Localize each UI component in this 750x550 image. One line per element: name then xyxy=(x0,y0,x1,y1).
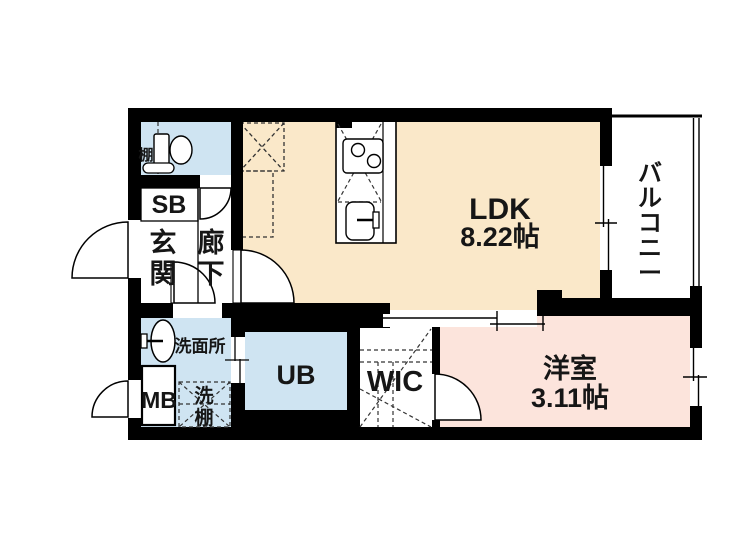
hallway-label: 廊下 xyxy=(198,227,225,289)
western-room-size-label: 3.11帖 xyxy=(531,383,609,413)
western-room-label: 洋室 xyxy=(543,353,597,384)
sink-icon xyxy=(346,202,379,240)
wall xyxy=(231,303,360,332)
laundry-washer-label: 洗 xyxy=(194,384,213,407)
stove-icon xyxy=(343,139,383,173)
meter-box-label: MB xyxy=(141,387,177,413)
meter-box-door-arc xyxy=(92,381,128,417)
balcony-label: バルコニー xyxy=(638,160,662,287)
wall xyxy=(128,108,141,220)
entrance-door-arc xyxy=(72,222,128,278)
wall xyxy=(347,318,360,440)
wall xyxy=(128,108,612,122)
toilet-door-arc xyxy=(200,188,231,219)
wall xyxy=(600,108,612,166)
unit-bath-label: UB xyxy=(277,360,316,390)
floor-plan-drawing: LDK 8.22帖 洋室 3.11帖 バルコニー 玄関 廊下 SB 棚 洗面所 … xyxy=(0,0,750,550)
wall xyxy=(690,286,702,350)
wall xyxy=(537,298,702,316)
wall xyxy=(600,270,612,316)
entrance-label: 玄関 xyxy=(150,227,177,289)
wall xyxy=(128,427,702,440)
kitchen-counter-icon xyxy=(336,121,396,243)
ldk-size-label: 8.22帖 xyxy=(460,222,540,252)
laundry-shelf-label: 棚 xyxy=(194,406,213,429)
entrance-door xyxy=(72,220,141,278)
wall xyxy=(128,175,200,188)
washroom-label: 洗面所 xyxy=(175,336,226,356)
shoe-box-label: SB xyxy=(152,191,187,219)
toilet-door xyxy=(200,175,231,219)
wall xyxy=(231,108,243,250)
room-ldk-floor xyxy=(243,122,600,310)
meter-box-door xyxy=(92,380,141,418)
wall xyxy=(432,327,440,374)
wall xyxy=(231,410,360,440)
wall xyxy=(128,278,141,380)
wall xyxy=(128,303,173,318)
wic-label: WIC xyxy=(367,366,423,398)
toilet-shelf-label: 棚 xyxy=(138,146,153,164)
wall xyxy=(432,420,440,440)
wall xyxy=(231,303,245,337)
wall xyxy=(690,406,702,440)
floor-plan-page: LDK 8.22帖 洋室 3.11帖 バルコニー 玄関 廊下 SB 棚 洗面所 … xyxy=(0,0,750,550)
